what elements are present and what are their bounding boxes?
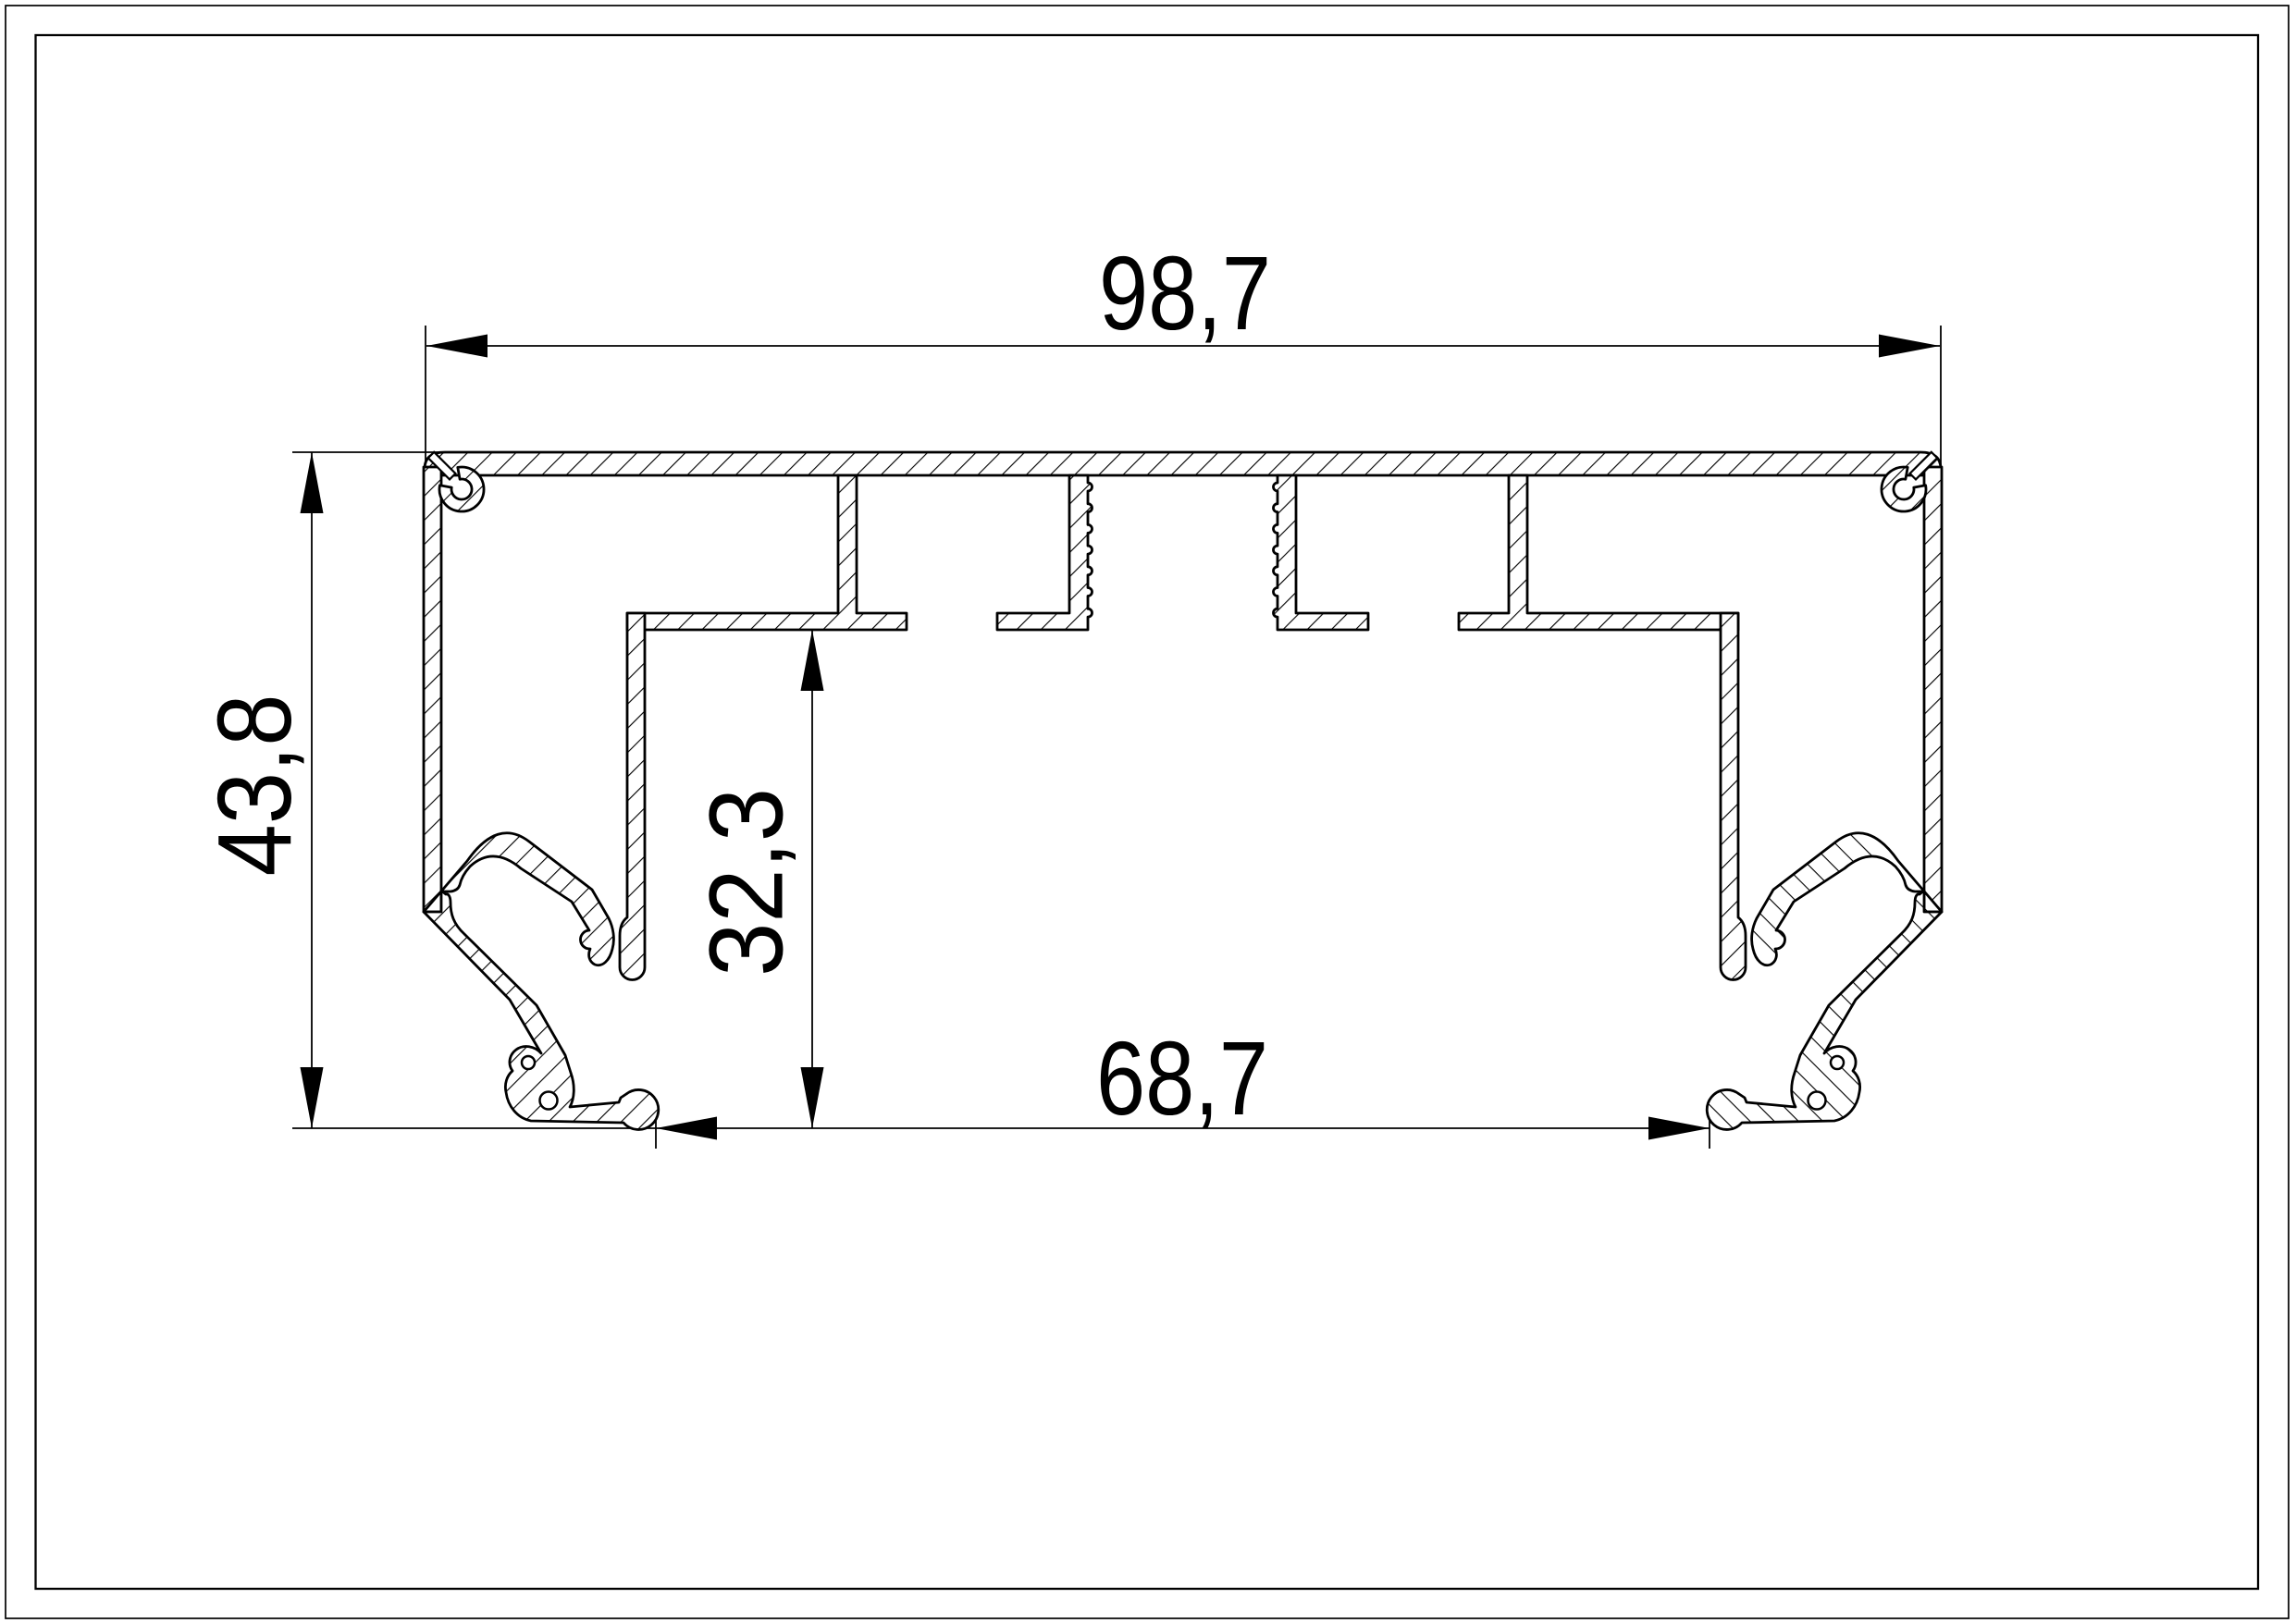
svg-text:43,8: 43,8 <box>196 695 313 877</box>
svg-text:32,3: 32,3 <box>688 788 805 977</box>
svg-text:98,7: 98,7 <box>1099 235 1271 351</box>
svg-text:68,7: 68,7 <box>1096 1020 1268 1137</box>
